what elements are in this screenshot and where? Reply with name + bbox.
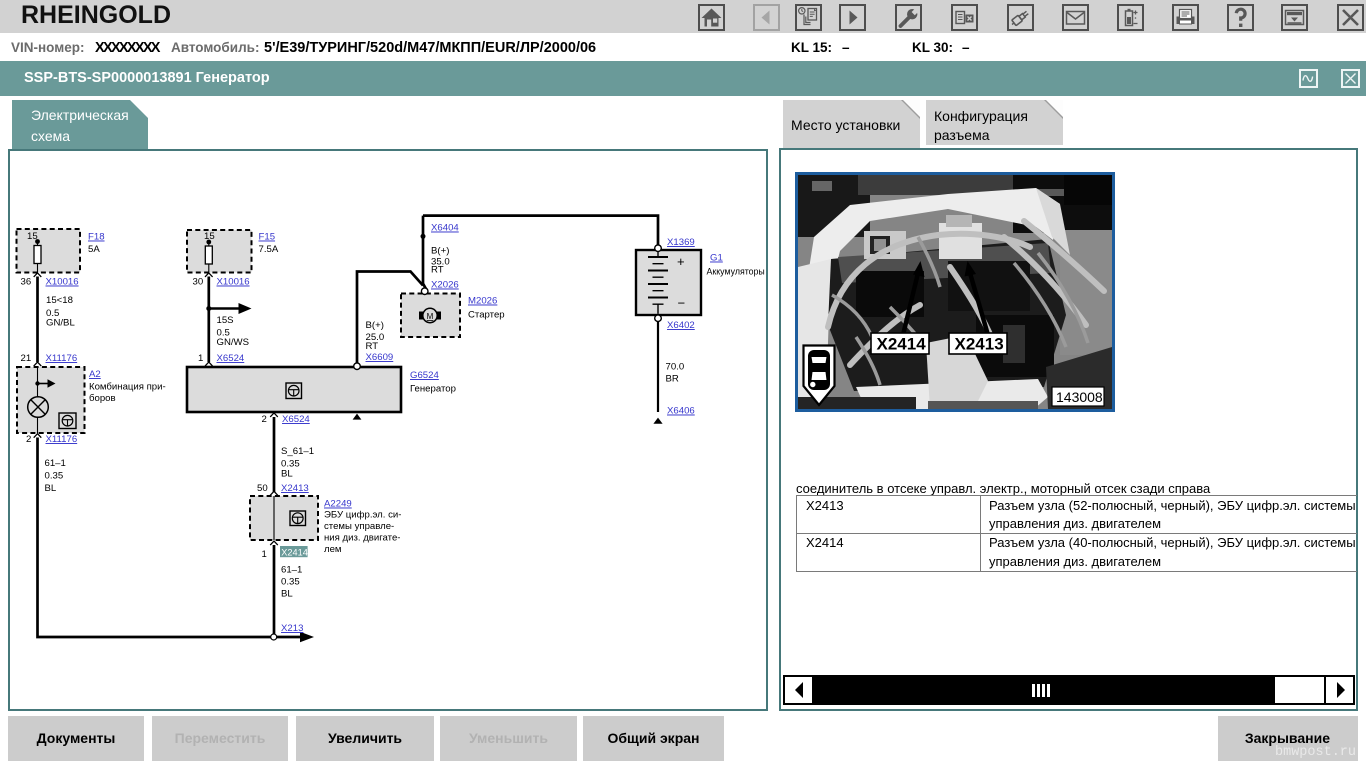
- svg-text:G1: G1: [710, 253, 723, 264]
- svg-text:X6524: X6524: [282, 414, 310, 425]
- svg-text:F15: F15: [259, 232, 276, 243]
- svg-text:S_61–1: S_61–1: [281, 446, 314, 457]
- svg-text:X11176: X11176: [46, 434, 78, 445]
- svg-text:X6524: X6524: [217, 353, 245, 364]
- svg-text:X6406: X6406: [667, 406, 695, 417]
- svg-text:лем: лем: [324, 544, 342, 555]
- svg-text:X2414: X2414: [877, 335, 927, 354]
- svg-text:GN/BL: GN/BL: [46, 318, 75, 329]
- svg-text:15: 15: [204, 231, 215, 242]
- svg-text:X1369: X1369: [667, 237, 695, 248]
- svg-text:X2413: X2413: [955, 335, 1004, 354]
- svg-text:15<18: 15<18: [46, 295, 73, 306]
- svg-text:36: 36: [21, 277, 32, 288]
- svg-text:боров: боров: [89, 393, 116, 404]
- svg-text:M: M: [427, 312, 434, 321]
- svg-text:−: −: [678, 296, 686, 311]
- svg-text:BL: BL: [281, 589, 293, 600]
- svg-text:61–1: 61–1: [45, 458, 66, 469]
- svg-text:X6609: X6609: [366, 352, 394, 363]
- svg-text:X213: X213: [281, 623, 303, 634]
- svg-text:G6524: G6524: [410, 370, 439, 381]
- svg-text:X2413: X2413: [281, 483, 309, 494]
- svg-text:RT: RT: [366, 341, 379, 352]
- svg-text:143008: 143008: [1056, 389, 1103, 405]
- svg-text:ния диз. двигате-: ния диз. двигате-: [324, 533, 401, 544]
- svg-text:M2026: M2026: [468, 296, 497, 307]
- svg-text:B(+): B(+): [366, 320, 384, 331]
- svg-text:Генератор: Генератор: [410, 384, 456, 395]
- svg-text:50: 50: [257, 483, 268, 494]
- svg-text:61–1: 61–1: [281, 565, 302, 576]
- svg-text:X10016: X10016: [217, 277, 250, 288]
- svg-text:+: +: [677, 254, 685, 269]
- svg-text:1: 1: [262, 549, 267, 560]
- svg-text:Аккумуляторы: Аккумуляторы: [707, 267, 765, 277]
- svg-text:BL: BL: [45, 483, 57, 494]
- svg-text:RT: RT: [431, 265, 444, 276]
- svg-text:2: 2: [262, 414, 267, 425]
- svg-text:A2: A2: [89, 369, 101, 380]
- svg-text:70.0: 70.0: [666, 362, 685, 373]
- svg-text:X2026: X2026: [431, 280, 459, 291]
- svg-text:7.5A: 7.5A: [259, 244, 279, 255]
- svg-text:X11176: X11176: [46, 353, 78, 364]
- svg-text:1: 1: [198, 353, 203, 364]
- svg-text:A2249: A2249: [324, 499, 352, 510]
- svg-text:F18: F18: [88, 232, 105, 243]
- svg-text:0.35: 0.35: [45, 471, 64, 482]
- svg-text:5A: 5A: [88, 244, 100, 255]
- svg-text:X10016: X10016: [46, 277, 79, 288]
- svg-text:X2414: X2414: [281, 547, 308, 557]
- svg-text:Стартер: Стартер: [468, 310, 505, 321]
- svg-text:BL: BL: [281, 469, 293, 480]
- svg-text:BR: BR: [666, 374, 679, 385]
- svg-text:X6402: X6402: [667, 320, 695, 331]
- svg-text:21: 21: [21, 353, 32, 364]
- svg-text:Комбинация при-: Комбинация при-: [89, 382, 166, 393]
- svg-text:15S: 15S: [217, 315, 234, 326]
- svg-text:GN/WS: GN/WS: [217, 337, 250, 348]
- svg-text:ЭБУ цифр.эл. си-: ЭБУ цифр.эл. си-: [324, 510, 401, 521]
- svg-text:B(+): B(+): [431, 246, 449, 257]
- svg-text:0.35: 0.35: [281, 577, 300, 588]
- svg-text:2: 2: [26, 434, 31, 445]
- svg-text:30: 30: [193, 277, 204, 288]
- svg-text:стемы управле-: стемы управле-: [324, 521, 394, 532]
- svg-text:15: 15: [27, 231, 38, 242]
- svg-text:X6404: X6404: [431, 223, 459, 234]
